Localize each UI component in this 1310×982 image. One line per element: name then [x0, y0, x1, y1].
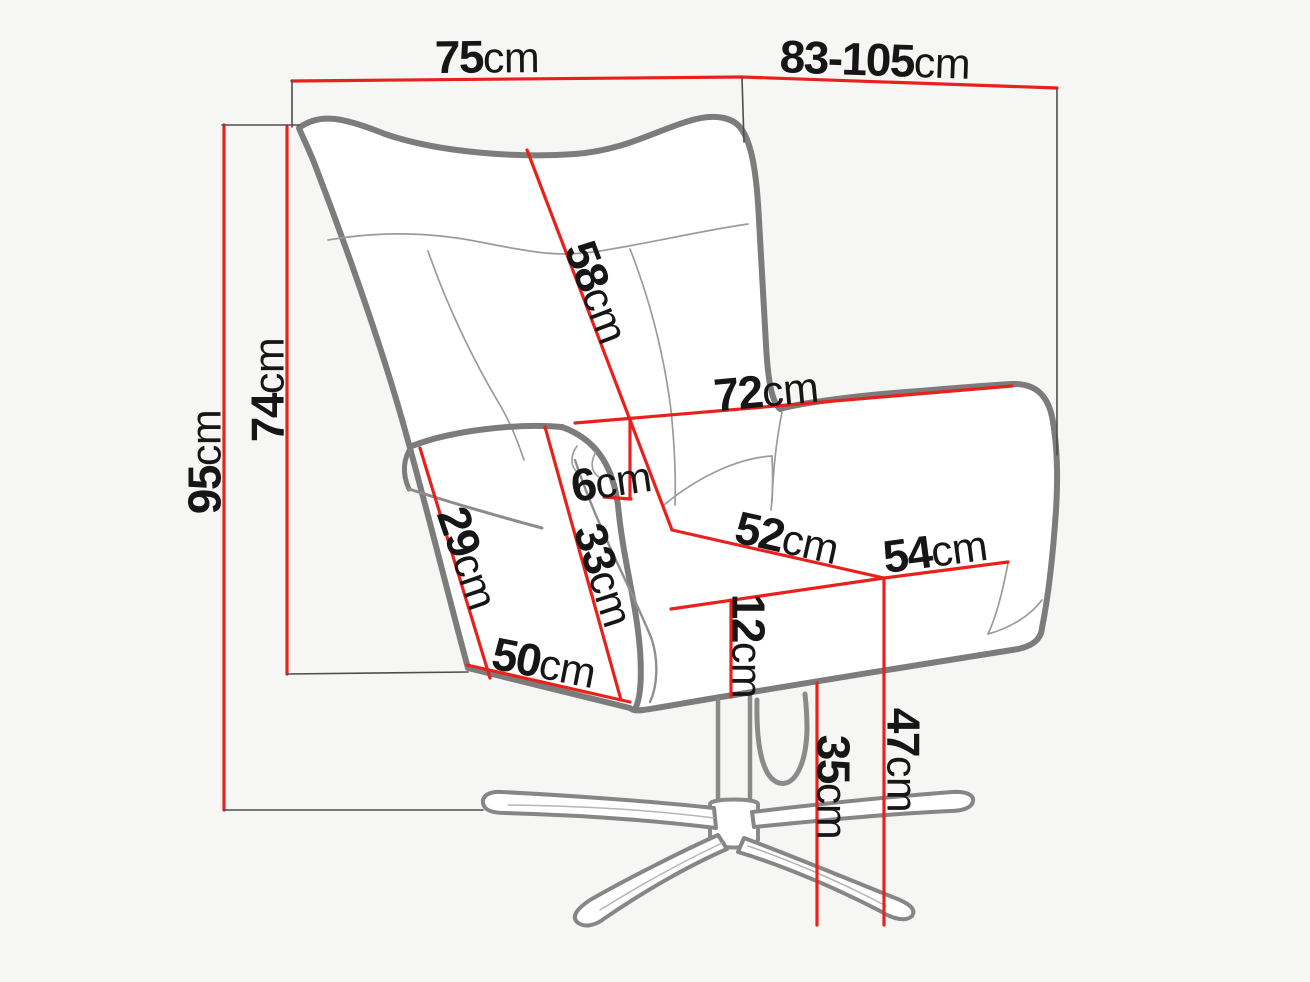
dim-label-overall-width-top: 75cm: [435, 33, 540, 81]
chair-dimension-diagram: 75cm 83-105cm 95cm 74cm 58cm 72cm 6cm 29…: [0, 0, 1310, 982]
dim-label-inner-width: 72cm: [712, 363, 821, 420]
dim-label-backrest-height: 74cm: [245, 338, 292, 443]
dim-label-overall-height: 95cm: [182, 410, 229, 515]
dim-label-seat-cushion-thickness: 12cm: [725, 594, 772, 699]
tilt-handle: [757, 694, 807, 783]
dim-label-armrest-top-width: 6cm: [568, 452, 654, 510]
dim-label-underseat-clearance: 35cm: [810, 735, 857, 840]
dim-label-seat-height: 47cm: [880, 708, 927, 813]
dim-label-overall-depth-range: 83-105cm: [779, 33, 971, 87]
